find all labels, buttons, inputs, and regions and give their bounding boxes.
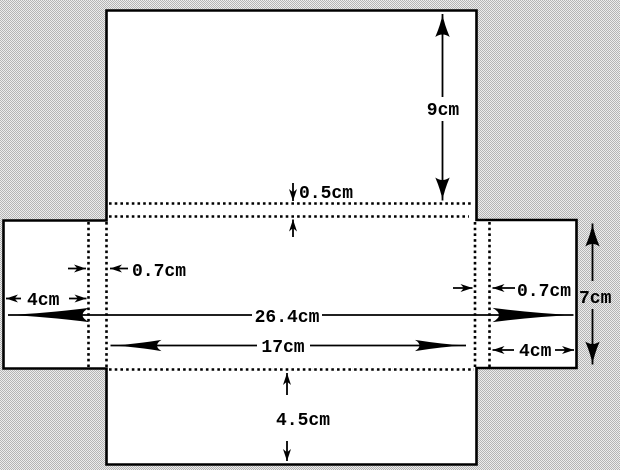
label-total-width: 26.4cm xyxy=(255,308,320,328)
label-left-tab-width: 4cm xyxy=(27,291,60,311)
label-left-fold-width: 0.7cm xyxy=(132,262,186,282)
diagram-stage: 9cm 0.5cm 0.7cm 4cm 26.4cm 17cm 0.7cm 4c… xyxy=(0,0,620,470)
label-top-flap-height: 9cm xyxy=(427,101,460,121)
label-right-fold-width: 0.7cm xyxy=(517,282,571,302)
label-fold-strip: 0.5cm xyxy=(299,184,353,204)
label-right-tab-width: 4cm xyxy=(519,342,552,362)
box-net-diagram: 9cm 0.5cm 0.7cm 4cm 26.4cm 17cm 0.7cm 4c… xyxy=(0,0,620,470)
label-side-height: 7cm xyxy=(579,289,612,309)
label-inner-width: 17cm xyxy=(261,338,304,358)
label-bottom-flap-height: 4.5cm xyxy=(276,411,330,431)
